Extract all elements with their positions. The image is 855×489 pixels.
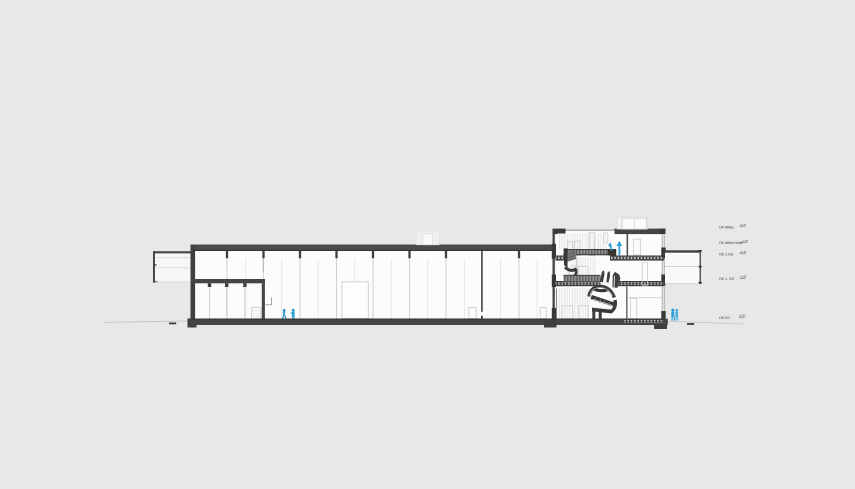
svg-text:OK Attika: OK Attika: [719, 225, 734, 229]
svg-text:OK EG: OK EG: [719, 316, 730, 320]
svg-text:OK 2.OG: OK 2.OG: [719, 252, 734, 256]
svg-text:OK Attika Halle: OK Attika Halle: [719, 241, 743, 245]
svg-text:OK 1. OG: OK 1. OG: [719, 277, 735, 281]
